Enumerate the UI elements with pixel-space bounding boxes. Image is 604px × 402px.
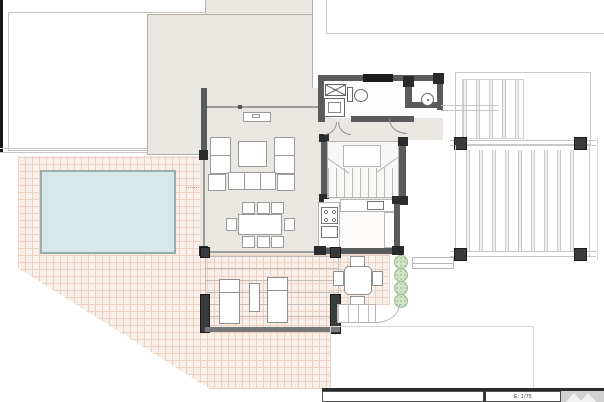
deck-post-sw [455,249,466,260]
sun-lounger-left [219,279,240,324]
shrub-icon [394,268,408,282]
swimming-pool [40,170,176,254]
cooktop [321,207,338,224]
boundary-line-h [330,326,533,327]
kitchen-sink [367,201,384,210]
patio-table [344,266,372,295]
boundary-line-v2 [533,326,534,388]
armchair-right [274,137,295,174]
gate-swing-arc [376,304,400,323]
deck-side-line-east [589,145,590,257]
pergola-side-table [249,283,260,312]
title-block-divider [483,391,486,402]
wall-tick-north [238,105,242,109]
shaft-x-box [325,84,346,96]
pergola-post-ne [331,248,340,257]
scale-label: E: 1/75 [487,393,559,402]
deck-post-ne [575,138,586,149]
walkway-line-2 [441,110,498,111]
stairs-landing [343,145,381,167]
sun-lounger-right [267,277,288,323]
patio-chair-right [372,271,383,286]
plot-line-ne-vertical [326,0,327,34]
deck-post-se [575,249,586,260]
deck-post-nw [455,138,466,149]
sofa-side-table-left [208,174,226,191]
pergola-post-nw [201,248,209,257]
dining-chair [242,202,255,214]
roof-overhang-notch [205,0,313,15]
column-west-mid [199,150,208,160]
dining-chair [242,236,255,248]
sofa [228,172,276,190]
left-edge-bar [0,0,3,153]
bath-window [363,74,393,82]
washer-inner [328,102,341,113]
deck-side-line-west [455,145,456,257]
toilet-tank [347,87,353,102]
dining-chair [271,236,284,248]
sink-drain-dot [427,99,429,101]
plot-line-ne-horizontal [326,33,604,34]
glazing-west [203,160,205,246]
dining-chair [257,202,270,214]
deck-pergola-slats [466,150,578,251]
patio-chair-left [333,271,344,286]
dining-table [238,214,282,235]
column-kitchen-sw [314,246,326,255]
dining-chair [271,202,284,214]
garden-steps [337,304,376,323]
stair-treads [328,168,398,197]
patio-chair-top [350,256,365,267]
sofa-side-table-right [277,174,295,191]
logo-triangle-icon [580,393,596,402]
wall-stairs-east [399,140,406,198]
dining-chair [284,218,295,231]
column-bath-partition [403,76,414,87]
glazing-south [209,251,321,253]
armchair-left [210,137,231,174]
coffee-table [238,141,267,167]
column-kitchen-se [392,246,404,255]
wall-bath-partition [405,86,412,108]
carport-slats [462,79,524,139]
tv-knob [252,114,260,118]
wall-living-west [201,88,207,150]
shrub-icon [394,281,408,295]
dining-chair [226,218,237,231]
garden-bench [412,257,454,269]
shrub-icon [394,255,408,269]
dining-chair [257,236,270,248]
column-stairs-ne [398,137,408,146]
floor-plan-sheet: E: 1/75 [0,0,604,402]
walkway-line-1 [441,105,498,106]
wall-kitchen-south [316,248,402,254]
wall-kitchen-east [394,199,400,248]
boundary-line-v1 [330,326,331,388]
pergola-south-beam [205,327,340,332]
column-kitchen-ne [392,196,402,204]
column-bath-ne [433,73,444,84]
toilet-bowl [354,89,368,102]
deck-edge-line [597,138,598,260]
kitchen-appliance-box [321,226,338,238]
glazing-north [207,106,318,108]
